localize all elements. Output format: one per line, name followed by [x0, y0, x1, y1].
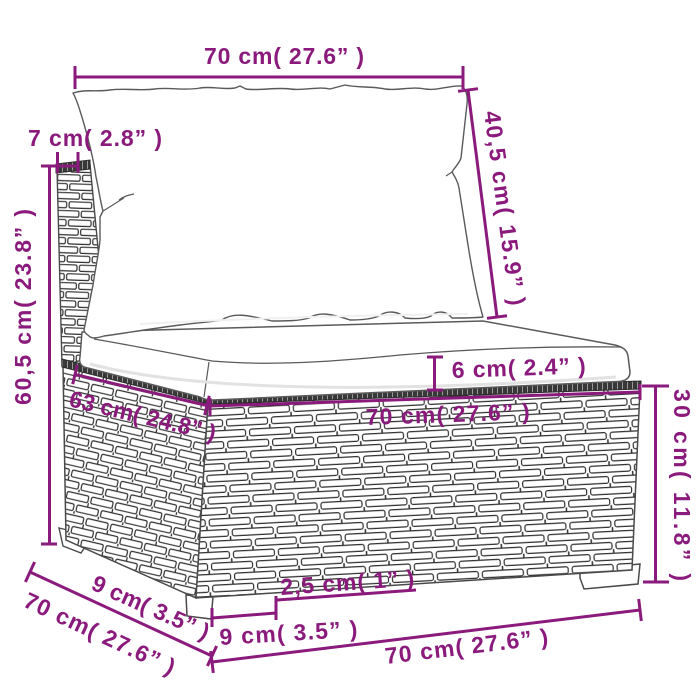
svg-text:70 cm( 27.6” ): 70 cm( 27.6” ): [204, 43, 364, 69]
svg-text:7 cm( 2.8” ): 7 cm( 2.8” ): [28, 125, 162, 151]
svg-text:60,5 cm( 23.8” ): 60,5 cm( 23.8” ): [10, 209, 36, 405]
svg-text:30 cm( 11.8” ): 30 cm( 11.8” ): [669, 389, 695, 581]
svg-text:6 cm( 2.4” ): 6 cm( 2.4” ): [451, 352, 586, 383]
